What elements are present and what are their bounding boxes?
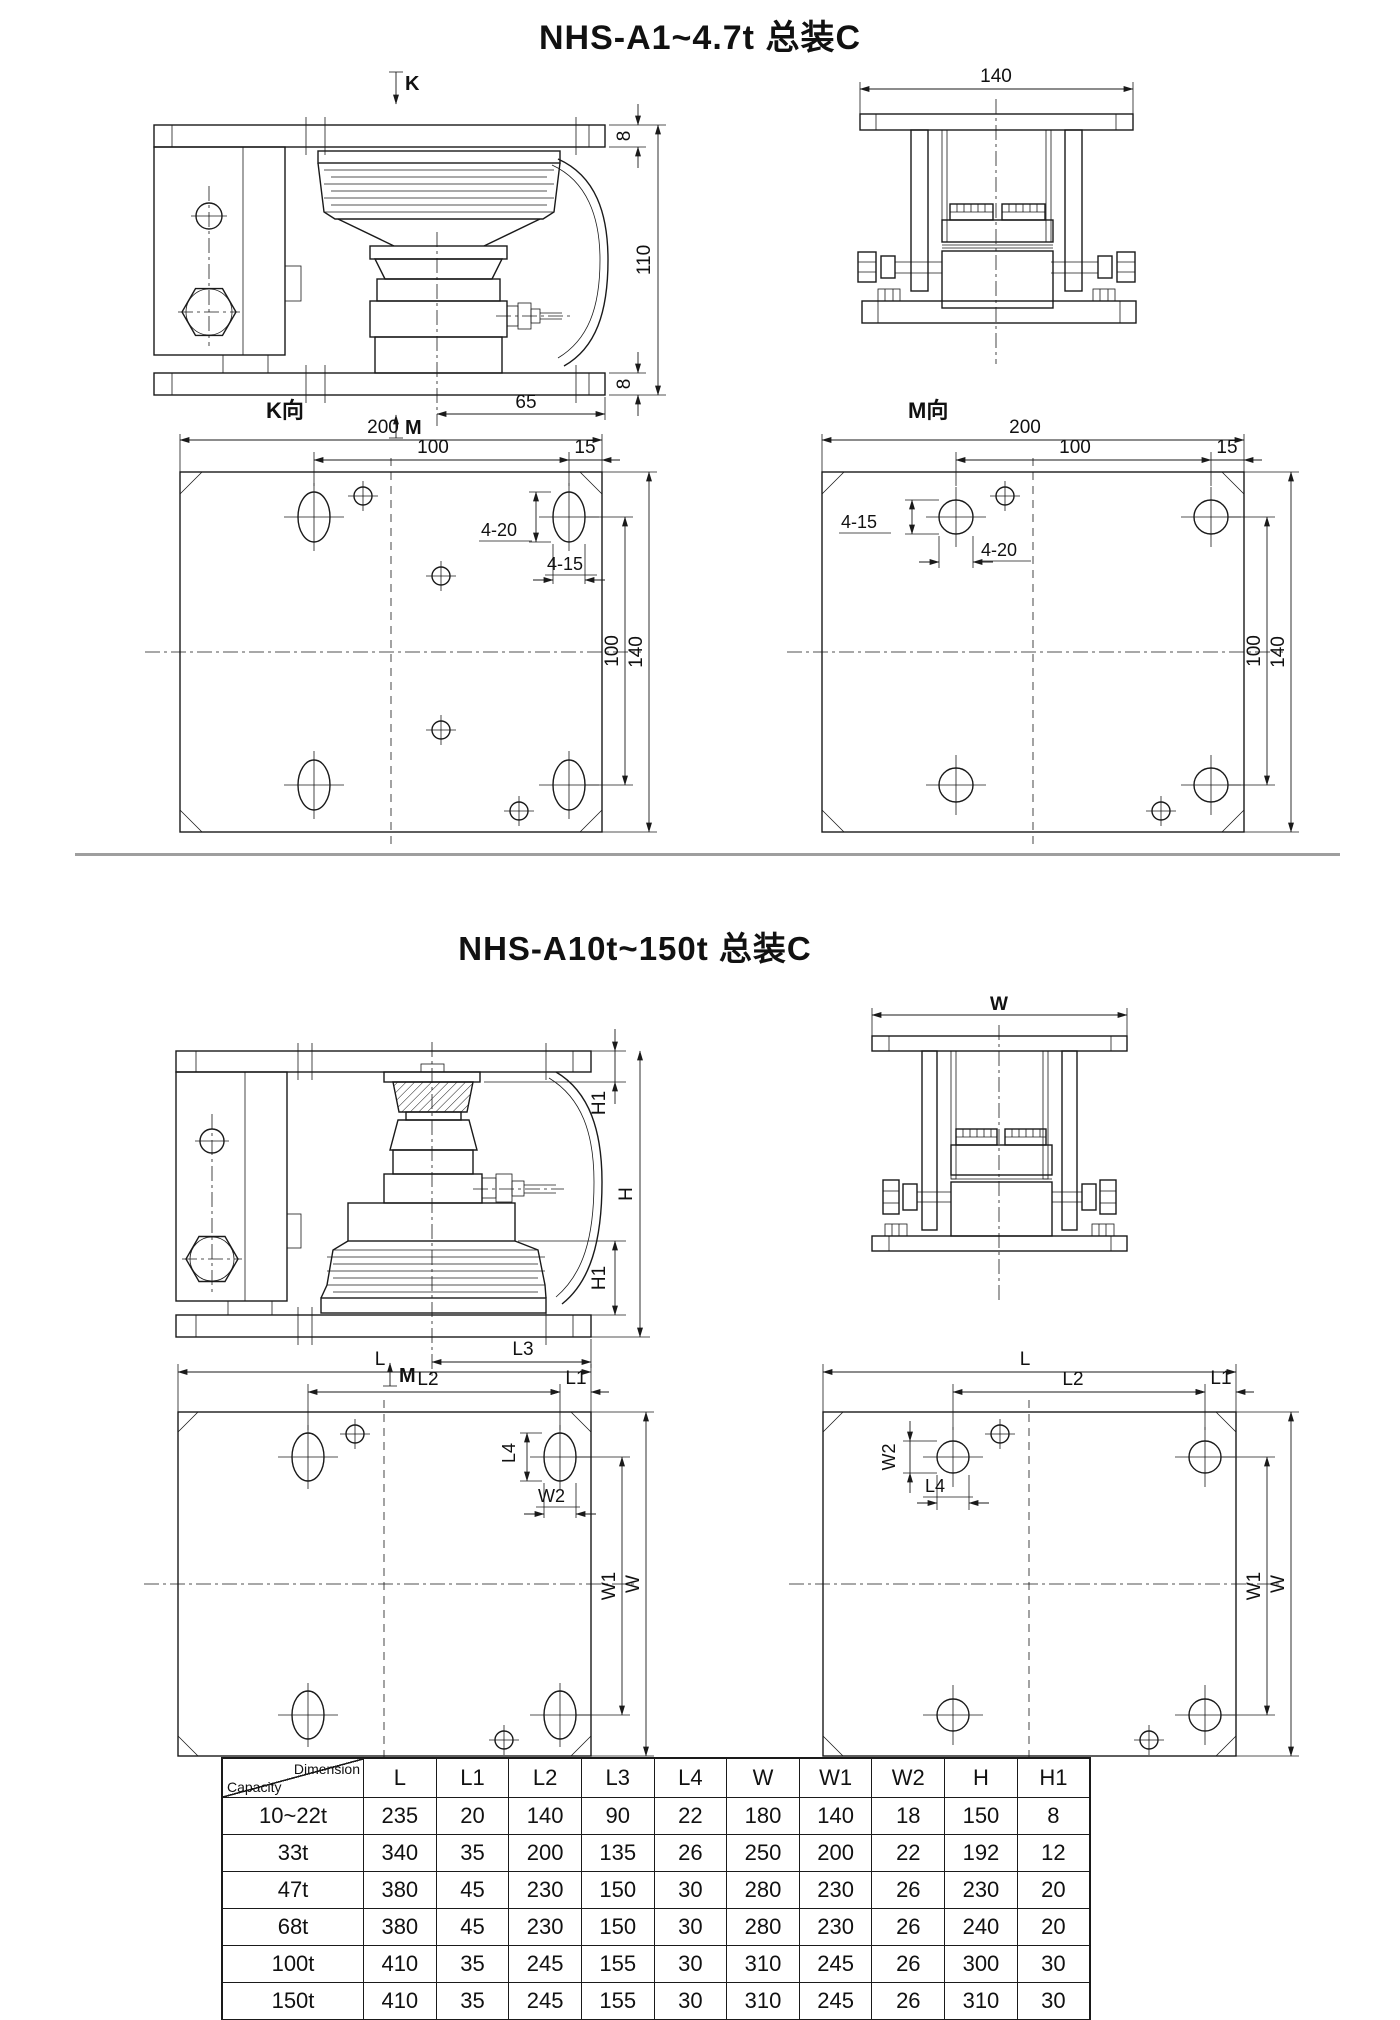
value-cell: 380 (364, 1909, 437, 1946)
dim-140: 140 (980, 66, 1012, 87)
capacity-cell: 100t (222, 1946, 364, 1983)
hatched-cap (393, 1082, 473, 1112)
dim-w: W (1268, 1575, 1289, 1593)
base-plate (789, 1400, 1280, 1768)
bolt-slots (284, 483, 599, 819)
side-bolts (883, 1180, 1116, 1214)
side-bolts (858, 252, 1135, 282)
dim-w1: W1 (1244, 1572, 1265, 1601)
value-cell: 26 (654, 1835, 727, 1872)
table-row: 68t38045230150302802302624020 (222, 1909, 1090, 1946)
dim-l: L (1020, 1349, 1031, 1370)
value-cell: 30 (654, 1909, 727, 1946)
corner-dimension-label: Dimension (294, 1761, 360, 1777)
dim-l4: L4 (499, 1443, 519, 1463)
dimension-table-body: DimensionCapacityLL1L2L3L4WW1W2HH110~22t… (222, 1758, 1090, 2020)
value-cell: 45 (436, 1872, 509, 1909)
s1-side-view: K (128, 64, 673, 449)
value-cell: 35 (436, 1946, 509, 1983)
table-corner-cell: DimensionCapacity (222, 1758, 364, 1798)
value-cell: 8 (1017, 1798, 1090, 1835)
dim-100: 100 (1059, 437, 1091, 458)
corner-capacity-label: Capacity (227, 1779, 281, 1795)
bolt-slots (278, 1425, 590, 1747)
slot-dim-label: 4-20 (481, 520, 517, 540)
value-cell: 235 (364, 1798, 437, 1835)
m-view-label: M向 (908, 398, 948, 423)
hole-annotations: W2 L4 (879, 1421, 989, 1510)
dim-w: W (623, 1575, 644, 1593)
value-cell: 192 (945, 1835, 1018, 1872)
value-cell: 22 (654, 1798, 727, 1835)
load-cell-assembly (942, 204, 1053, 308)
dim-width-w: W (872, 994, 1127, 1036)
s2-front-view: W (855, 1000, 1285, 1350)
drawing-page: NHS-A1~4.7t 总装C NHS-A10t~150t 总装C K (0, 0, 1400, 2020)
side-bracket-column (176, 1072, 301, 1315)
value-cell: 20 (436, 1798, 509, 1835)
capacity-cell: 10~22t (222, 1798, 364, 1835)
s2-plan-view-left: L L2 L1 W1 W L4 W2 (130, 1352, 675, 1772)
value-cell: 26 (872, 1909, 945, 1946)
s2-plan-view-right: L L2 L1 W1 W W2 L4 (775, 1352, 1320, 1772)
table-row: 150t41035245155303102452631030 (222, 1983, 1090, 2020)
dim-140-v: 140 (1268, 636, 1289, 668)
capacity-cell: 68t (222, 1909, 364, 1946)
side-bracket-column (154, 147, 301, 373)
dim-l4: L4 (925, 1476, 945, 1496)
value-cell: 200 (799, 1835, 872, 1872)
column-header: L4 (654, 1758, 727, 1798)
value-cell: 310 (727, 1946, 800, 1983)
value-cell: 410 (364, 1983, 437, 2020)
value-cell: 140 (799, 1798, 872, 1835)
cable-loop (552, 159, 608, 366)
dim-w2: W2 (538, 1486, 565, 1506)
value-cell: 245 (799, 1946, 872, 1983)
value-cell: 45 (436, 1909, 509, 1946)
section-divider (75, 853, 1340, 856)
value-cell: 35 (436, 1835, 509, 1872)
dim-l2: L2 (1062, 1369, 1083, 1390)
dim-w2: W2 (879, 1444, 899, 1471)
value-cell: 310 (727, 1983, 800, 2020)
column-header: L (364, 1758, 437, 1798)
dims-top: L L2 L1 (823, 1349, 1254, 1430)
slot-annotations: 4-20 4-15 (479, 492, 605, 584)
top-flange-plate (154, 117, 605, 155)
bolt-holes (923, 1427, 1235, 1745)
value-cell: 140 (509, 1798, 582, 1835)
dim-plate-thickness-top: 8 (609, 104, 666, 168)
value-cell: 20 (1017, 1872, 1090, 1909)
value-cell: 30 (654, 1946, 727, 1983)
dim-l1: L1 (1210, 1368, 1231, 1389)
value-cell: 30 (1017, 1946, 1090, 1983)
k-view-arrow-label: K (405, 73, 420, 95)
value-cell: 250 (727, 1835, 800, 1872)
load-cell-assembly (348, 1042, 515, 1377)
dim-w: W (990, 994, 1008, 1015)
table-row: 10~22t235201409022180140181508 (222, 1798, 1090, 1835)
column-header: L3 (581, 1758, 654, 1798)
table-row: 33t34035200135262502002219212 (222, 1835, 1090, 1872)
dim-8-top: 8 (614, 131, 635, 142)
s1-front-view: 140 (845, 64, 1265, 384)
bottom-plate (862, 289, 1136, 323)
base-plate (144, 1400, 635, 1768)
slot-dim-label: 4-20 (981, 540, 1017, 560)
value-cell: 12 (1017, 1835, 1090, 1872)
value-cell: 410 (364, 1946, 437, 1983)
support-columns (922, 1051, 1077, 1230)
hole-dim-label: 4-15 (547, 554, 583, 574)
k-view-arrow: K (389, 72, 420, 104)
value-cell: 200 (509, 1835, 582, 1872)
bottom-plate (872, 1224, 1127, 1251)
top-plate (860, 114, 1133, 130)
column-header: W1 (799, 1758, 872, 1798)
value-cell: 30 (654, 1983, 727, 2020)
capacity-cell: 47t (222, 1872, 364, 1909)
small-holes (985, 1419, 1164, 1755)
dimension-table: DimensionCapacityLL1L2L3L4WW1W2HH110~22t… (221, 1757, 1091, 2020)
value-cell: 150 (945, 1798, 1018, 1835)
value-cell: 30 (654, 1872, 727, 1909)
value-cell: 310 (945, 1983, 1018, 2020)
value-cell: 26 (872, 1983, 945, 2020)
dim-h: H (575, 1051, 650, 1337)
bellows-spring (318, 151, 560, 246)
value-cell: 20 (1017, 1909, 1090, 1946)
column-header: H1 (1017, 1758, 1090, 1798)
value-cell: 245 (509, 1983, 582, 2020)
table-header-row: DimensionCapacityLL1L2L3L4WW1W2HH1 (222, 1758, 1090, 1798)
bellows-spring (321, 1241, 546, 1313)
dims-top: L L2 L1 (178, 1349, 609, 1430)
column-header: L2 (509, 1758, 582, 1798)
column-header: W (727, 1758, 800, 1798)
dim-8-bottom: 8 (614, 379, 635, 390)
base-plate (145, 458, 641, 844)
value-cell: 30 (1017, 1983, 1090, 2020)
dim-100: 100 (417, 437, 449, 458)
dim-200: 200 (367, 417, 399, 438)
value-cell: 135 (581, 1835, 654, 1872)
value-cell: 155 (581, 1946, 654, 1983)
value-cell: 155 (581, 1983, 654, 2020)
column-header: H (945, 1758, 1018, 1798)
value-cell: 230 (799, 1909, 872, 1946)
value-cell: 150 (581, 1909, 654, 1946)
value-cell: 340 (364, 1835, 437, 1872)
hole-dim-label: 4-15 (841, 512, 877, 532)
dim-15: 15 (574, 437, 595, 458)
dim-h1-bottom-label: H1 (589, 1266, 610, 1290)
dim-110: 110 (634, 245, 655, 275)
dim-140-v: 140 (626, 636, 647, 668)
value-cell: 230 (945, 1872, 1018, 1909)
value-cell: 26 (872, 1872, 945, 1909)
value-cell: 240 (945, 1909, 1018, 1946)
top-plate (872, 1036, 1127, 1051)
k-view-label: K向 (266, 398, 304, 423)
dim-100-v: 100 (1244, 635, 1265, 667)
value-cell: 230 (509, 1872, 582, 1909)
small-holes (990, 481, 1176, 826)
dims-top: 200 100 15 (822, 417, 1262, 486)
section2-title: NHS-A10t~150t 总装C (0, 922, 1270, 970)
dim-h-label: H (616, 1187, 637, 1201)
dim-h1-top-label: H1 (589, 1091, 610, 1115)
table-row: 47t38045230150302802302623020 (222, 1872, 1090, 1909)
value-cell: 230 (509, 1909, 582, 1946)
dim-w1: W1 (599, 1572, 620, 1601)
value-cell: 230 (799, 1872, 872, 1909)
value-cell: 150 (581, 1872, 654, 1909)
value-cell: 26 (872, 1946, 945, 1983)
s1-plan-view-k: K向 200 (133, 396, 678, 848)
column-header: L1 (436, 1758, 509, 1798)
value-cell: 245 (799, 1983, 872, 2020)
value-cell: 35 (436, 1983, 509, 2020)
table-row: 100t41035245155303102452630030 (222, 1946, 1090, 1983)
dim-l1: L1 (565, 1368, 586, 1389)
small-holes (340, 1419, 519, 1755)
value-cell: 300 (945, 1946, 1018, 1983)
dims-top: 200 100 15 (180, 417, 620, 486)
value-cell: 280 (727, 1872, 800, 1909)
cable-connector (496, 303, 570, 329)
hole-annotations: 4-15 4-20 (839, 500, 1031, 568)
dim-200: 200 (1009, 417, 1041, 438)
value-cell: 90 (581, 1798, 654, 1835)
value-cell: 22 (872, 1835, 945, 1872)
capacity-cell: 33t (222, 1835, 364, 1872)
dim-width-140: 140 (860, 66, 1133, 114)
capacity-cell: 150t (222, 1983, 364, 2020)
dim-l2: L2 (417, 1369, 438, 1390)
s1-plan-view-m: M向 200 100 (775, 396, 1320, 848)
support-columns (911, 130, 1082, 291)
dim-15: 15 (1216, 437, 1237, 458)
value-cell: 245 (509, 1946, 582, 1983)
slot-annotations: L4 W2 (499, 1433, 596, 1518)
value-cell: 280 (727, 1909, 800, 1946)
dim-l: L (375, 1349, 386, 1370)
dim-100-v: 100 (602, 635, 623, 667)
section1-title: NHS-A1~4.7t 总装C (0, 10, 1400, 59)
column-header: W2 (872, 1758, 945, 1798)
value-cell: 18 (872, 1798, 945, 1835)
value-cell: 380 (364, 1872, 437, 1909)
cable-connector (473, 1174, 564, 1202)
value-cell: 180 (727, 1798, 800, 1835)
load-cell-assembly (951, 1129, 1052, 1236)
